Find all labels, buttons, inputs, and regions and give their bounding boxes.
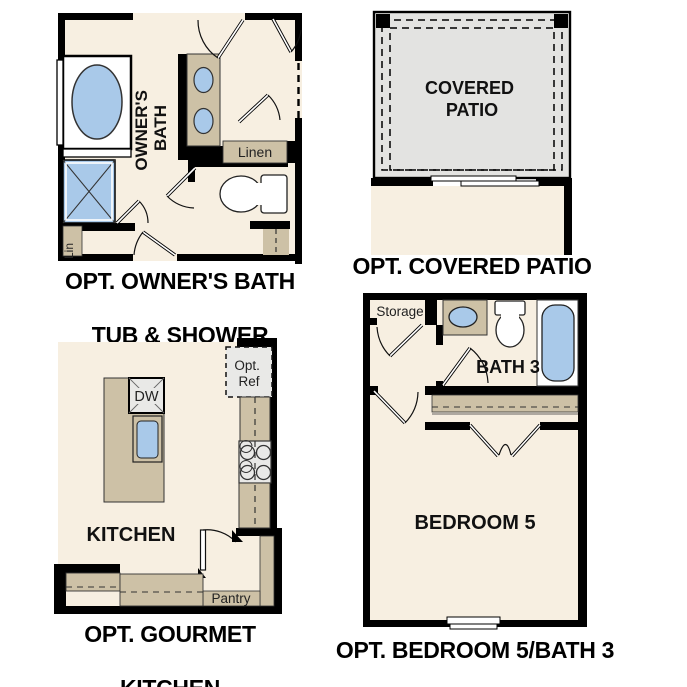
vanity-sink — [194, 68, 213, 93]
bath3-sink — [449, 307, 477, 327]
bathtub — [72, 65, 122, 139]
opt-ref-label: Opt. Ref — [234, 358, 263, 389]
bedroom5-bath3-plan: Storage BATH 3 — [358, 286, 590, 634]
dw-label: DW — [134, 389, 158, 405]
storage-label: Storage — [376, 304, 423, 319]
window — [447, 617, 500, 629]
kitchen-label: KITCHEN — [87, 524, 176, 546]
pantry-shelf — [260, 536, 274, 606]
lin-label: Lin — [62, 243, 76, 259]
bath3-label: BATH 3 — [476, 357, 540, 377]
island-sink — [133, 416, 162, 462]
pantry-label: Pantry — [211, 591, 250, 606]
floorplan-options-sheet: Lin Linen — [0, 0, 687, 687]
vanity-sink — [194, 109, 213, 134]
linen-closet: Linen — [223, 141, 287, 163]
bath3-toilet — [495, 301, 525, 347]
kitchen-island: DW — [104, 378, 164, 502]
gourmet-kitchen-caption: OPT. GOURMET KITCHEN — [55, 621, 285, 687]
linen-label: Linen — [238, 144, 272, 160]
bath3-tub — [537, 300, 578, 386]
lin-closet: Lin — [62, 226, 82, 259]
tub-area — [57, 56, 131, 157]
bedroom5-label: BEDROOM 5 — [414, 512, 535, 534]
optional-refrigerator: Opt. Ref — [226, 347, 272, 397]
closet-shelf — [432, 395, 578, 414]
lower-cabinet — [263, 229, 289, 255]
interior-floor — [371, 186, 564, 255]
patio-post — [554, 14, 568, 28]
covered-patio-caption: OPT. COVERED PATIO — [337, 253, 607, 280]
bedroom5-bath3-caption: OPT. BEDROOM 5/BATH 3 — [325, 637, 625, 664]
bath3-vanity — [443, 300, 487, 335]
dishwasher: DW — [129, 378, 164, 413]
covered-patio-plan: COVERED PATIO — [366, 10, 578, 255]
shower — [63, 160, 115, 223]
tub-window — [57, 60, 63, 145]
toilet — [220, 175, 287, 213]
owners-bath-plan: Lin Linen — [55, 8, 305, 264]
double-vanity — [187, 54, 220, 146]
gourmet-kitchen-plan: Opt. Ref Pantry — [53, 334, 283, 616]
patio-post — [376, 14, 390, 28]
